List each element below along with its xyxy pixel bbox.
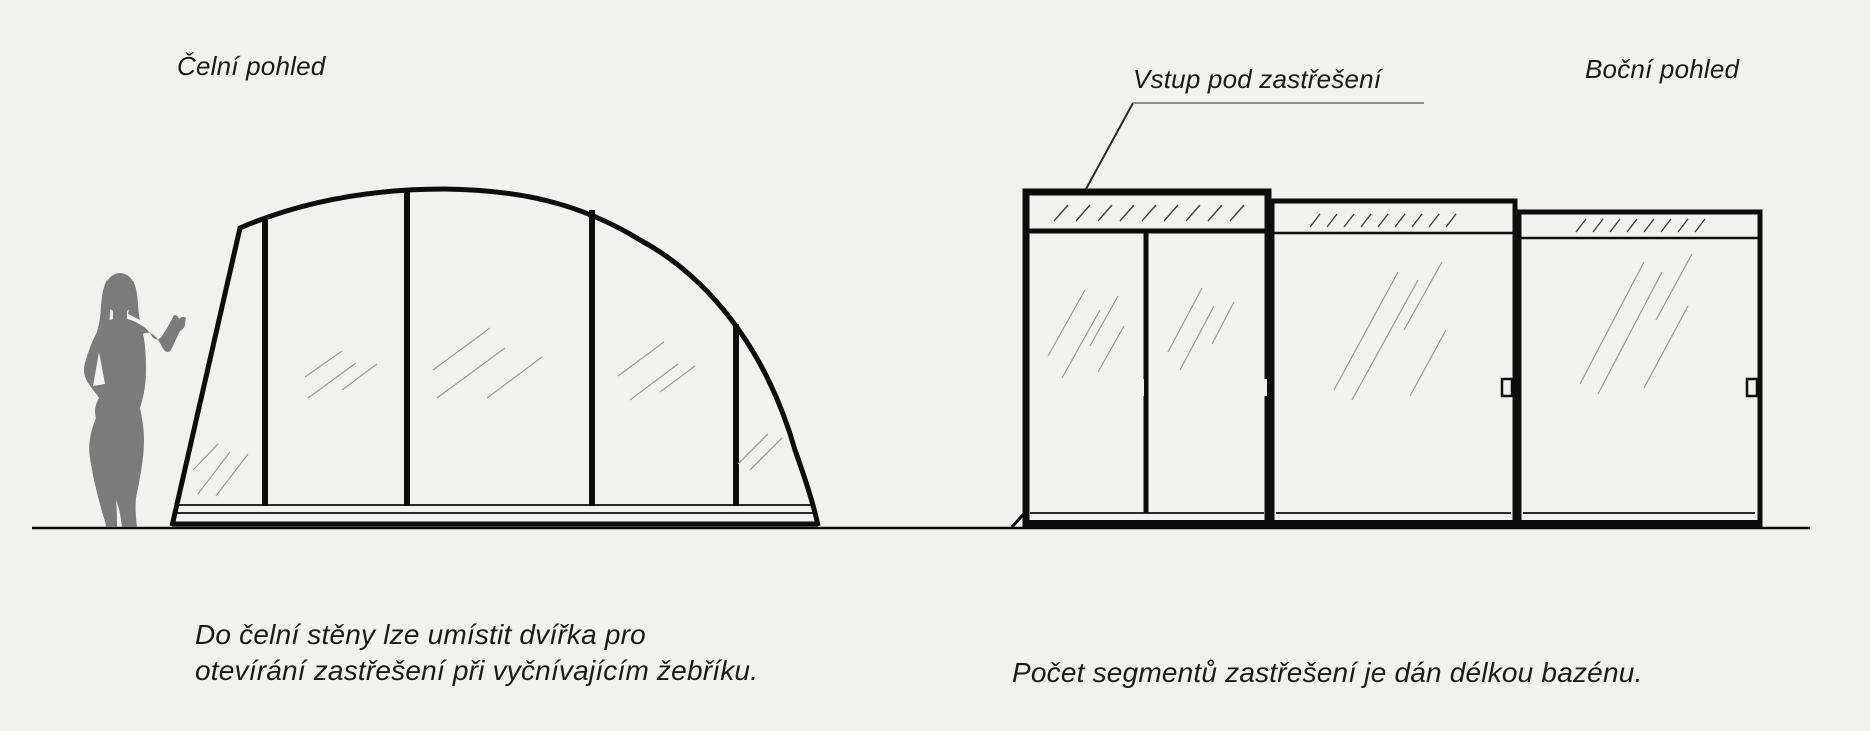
person-body	[84, 315, 186, 527]
glass-shine-panel5	[738, 434, 782, 470]
segment-3-frame	[1519, 212, 1760, 525]
entry-callout	[1086, 103, 1424, 189]
segment-2-roof-hatch	[1310, 214, 1456, 227]
segment-1-glass-shine-left	[1048, 290, 1124, 378]
front-view	[84, 189, 818, 527]
segment-1	[1012, 192, 1268, 527]
entry-label: Vstup pod zastřešení	[1133, 64, 1381, 95]
glass-shine-panel3	[433, 328, 542, 398]
segment-2-handle	[1502, 379, 1512, 396]
side-view-note: Počet segmentů zastřešení je dán délkou …	[1012, 655, 1642, 691]
pool-enclosure-diagram: Čelní pohled Vstup pod zastřešení Boční …	[0, 0, 1870, 731]
glass-shine-panel4	[618, 342, 695, 400]
person-silhouette	[84, 273, 186, 527]
front-view-title: Čelní pohled	[177, 51, 325, 82]
segment-2-frame	[1272, 201, 1515, 525]
side-view	[1012, 103, 1760, 527]
glass-shine-panel2	[305, 351, 377, 398]
front-view-note: Do čelní stěny lze umístit dvířka pro ot…	[195, 617, 758, 689]
segment-1-door-handle-right	[1257, 379, 1267, 396]
segment-3-glass-shine	[1580, 254, 1692, 394]
glass-shine-panel1	[193, 444, 248, 496]
front-view-note-line2: otevírání zastřešení při vyčnívajícím že…	[195, 653, 758, 689]
segment-1-door-handle-left	[1134, 379, 1144, 396]
front-view-note-line1: Do čelní stěny lze umístit dvířka pro	[195, 617, 758, 653]
enclosure-outline	[172, 189, 818, 526]
segment-2	[1272, 201, 1515, 525]
segment-2-glass-shine	[1334, 262, 1446, 400]
side-view-title: Boční pohled	[1585, 54, 1739, 85]
segment-3-roof-hatch	[1576, 219, 1705, 232]
segment-3-handle	[1747, 379, 1757, 396]
segment-1-glass-shine-right	[1168, 288, 1234, 370]
segment-3	[1519, 212, 1760, 525]
segment-1-roof-hatch	[1054, 205, 1244, 221]
entry-leader-line	[1086, 103, 1133, 189]
